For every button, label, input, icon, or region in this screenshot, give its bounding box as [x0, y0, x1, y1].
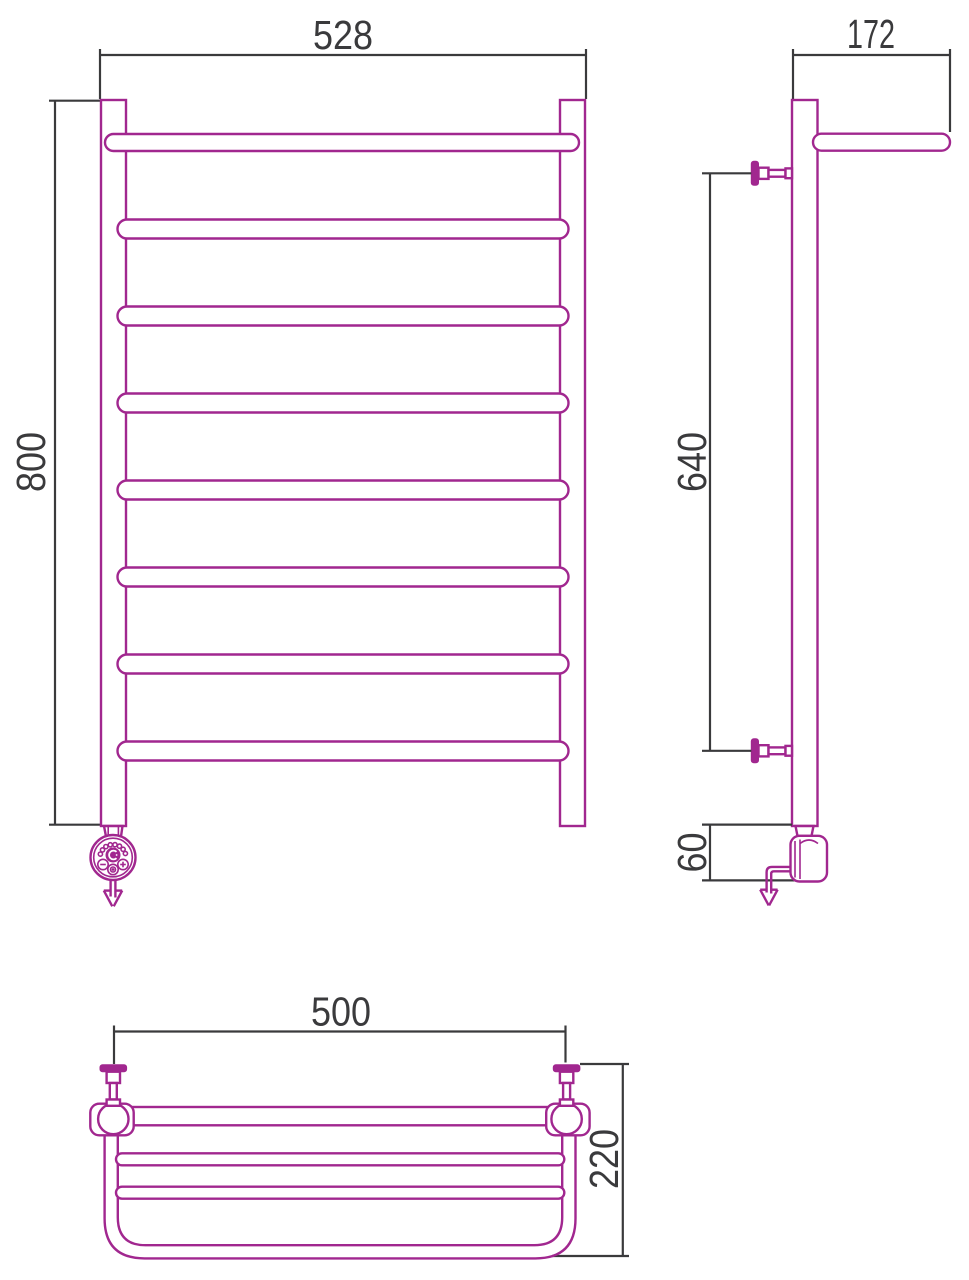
front-rung — [118, 307, 569, 326]
bracket-wall-flange — [751, 739, 758, 763]
plan-post-left — [98, 1104, 128, 1134]
bracket-neck — [769, 747, 786, 754]
heater-control — [91, 826, 136, 906]
front-rung — [118, 220, 569, 239]
plan-mount-left — [100, 1065, 127, 1106]
power-cable-arrow — [104, 880, 122, 907]
front-rung — [118, 742, 569, 761]
plan-shelf-outline-inner — [118, 1124, 562, 1245]
bracket-collar — [759, 745, 769, 756]
front-rung — [118, 394, 569, 413]
side-shelf-arm — [813, 134, 950, 151]
dim-side-depth-label: 172 — [847, 11, 895, 57]
dim-plan-width-label: 500 — [311, 989, 371, 1035]
bracket-neck — [769, 170, 786, 177]
heater-box-body — [791, 836, 828, 882]
bracket-post-collar — [786, 746, 793, 756]
plan-view: 500 220 — [90, 989, 629, 1259]
front-top-rail — [105, 134, 579, 151]
bracket-collar — [759, 168, 769, 179]
plan-main-bar — [113, 1107, 567, 1125]
front-rung — [118, 481, 569, 500]
mount-flare — [107, 1100, 120, 1106]
plan-mount-right — [553, 1065, 580, 1106]
plan-post-right — [551, 1104, 581, 1134]
dim-front-width: 528 — [100, 12, 586, 99]
dim-side-bracket-spacing-label: 640 — [669, 432, 715, 492]
target-icon-dot — [112, 869, 114, 871]
dim-plan-depth-label: 220 — [581, 1129, 627, 1189]
plan-shelf-rail — [116, 1187, 564, 1199]
dim-side-bracket-spacing: 640 — [669, 173, 751, 751]
wall-bracket-top — [751, 161, 792, 185]
front-rung — [118, 568, 569, 587]
plan-shelf-rail — [116, 1153, 564, 1165]
heater-connector-side — [796, 826, 814, 836]
mount-wall-flange — [100, 1065, 127, 1072]
mount-collar — [560, 1072, 573, 1083]
heater-box-side — [760, 826, 827, 905]
technical-drawing-page: 528 800 — [0, 0, 969, 1280]
dim-front-height: 800 — [8, 101, 102, 825]
front-rung — [118, 655, 569, 674]
front-right-post — [560, 100, 585, 826]
wall-bracket-bottom — [751, 739, 792, 763]
bracket-wall-flange — [751, 161, 758, 185]
side-view: 172 640 60 — [669, 11, 950, 905]
mount-wall-flange — [553, 1065, 580, 1072]
mount-neck — [563, 1083, 570, 1100]
mount-flare — [560, 1100, 573, 1106]
front-view: 528 800 — [8, 12, 586, 906]
dim-side-heater-offset-label: 60 — [669, 833, 715, 873]
power-cable-arrow-side — [760, 867, 790, 906]
towel-rail-technical-drawing: 528 800 — [0, 0, 969, 1280]
dim-front-width-label: 528 — [313, 12, 373, 58]
dim-plan-width: 500 — [114, 989, 566, 1065]
dim-front-height-label: 800 — [8, 432, 54, 492]
side-post — [792, 100, 818, 826]
mount-neck — [110, 1083, 117, 1100]
mount-collar — [107, 1072, 120, 1083]
front-left-post — [101, 100, 126, 826]
bracket-post-collar — [786, 168, 793, 178]
front-rungs — [118, 220, 569, 761]
power-icon-dot — [116, 854, 118, 856]
